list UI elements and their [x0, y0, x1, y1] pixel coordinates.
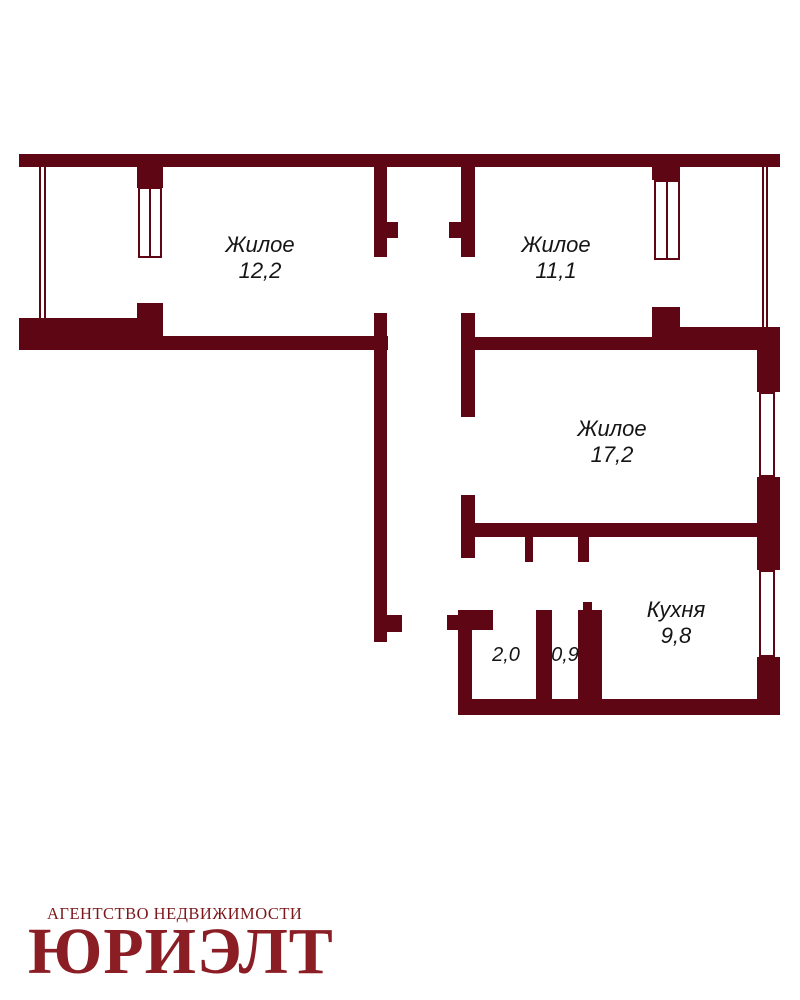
wall-segment — [583, 602, 592, 610]
wall-segment — [19, 318, 163, 350]
wall-segment — [162, 336, 388, 350]
wall-segment — [374, 313, 387, 642]
room-label-living-room-2: Жилое11,1 — [521, 232, 590, 284]
wall-segment — [757, 350, 780, 392]
floor-plan: Жилое12,2Жилое11,1Жилое17,2Кухня9,82,00,… — [0, 0, 800, 720]
wall-segment — [137, 167, 163, 188]
room-area-value: 9,8 — [647, 623, 706, 649]
wall-segment — [473, 523, 758, 537]
wall-segment — [652, 167, 680, 180]
balcony-glazing-line — [39, 167, 41, 318]
room-label-bathroom: 2,0 — [492, 644, 520, 668]
room-name: Жилое — [521, 232, 590, 258]
wall-segment — [19, 154, 780, 167]
wall-segment — [475, 337, 652, 350]
wall-segment — [447, 615, 458, 630]
room-label-living-room-1: Жилое12,2 — [225, 232, 294, 284]
balcony-glazing-line — [762, 167, 764, 327]
room-label-kitchen: Кухня9,8 — [647, 597, 706, 649]
window-symbol — [138, 187, 162, 258]
wall-segment — [578, 537, 589, 562]
wall-segment — [757, 477, 780, 570]
wall-segment — [374, 167, 387, 257]
wall-segment — [387, 615, 402, 632]
agency-brand-name: ЮРИЭЛТ — [28, 919, 334, 985]
floor-plan-page: Жилое12,2Жилое11,1Жилое17,2Кухня9,82,00,… — [0, 0, 800, 1000]
wall-segment — [137, 303, 163, 318]
room-name: Жилое — [225, 232, 294, 258]
wall-segment — [458, 610, 493, 630]
wall-segment — [461, 313, 475, 417]
balcony-glazing-line — [766, 167, 768, 327]
window-mullion — [666, 182, 668, 258]
room-area-value: 2,0 — [492, 644, 520, 668]
room-label-living-room-3: Жилое17,2 — [577, 416, 646, 468]
wall-segment — [458, 699, 780, 715]
window-mullion — [149, 189, 151, 256]
wall-segment — [449, 222, 461, 238]
window-symbol — [654, 180, 680, 260]
room-name: Жилое — [577, 416, 646, 442]
window-symbol — [759, 392, 775, 477]
room-label-toilet: 0,9 — [551, 644, 579, 668]
room-area-value: 12,2 — [225, 258, 294, 284]
wall-segment — [680, 327, 780, 350]
wall-segment — [652, 307, 680, 350]
window-symbol — [759, 570, 775, 657]
room-name: Кухня — [647, 597, 706, 623]
wall-segment — [461, 167, 475, 257]
room-area-value: 11,1 — [521, 258, 590, 284]
wall-segment — [387, 222, 398, 238]
room-area-value: 0,9 — [551, 644, 579, 668]
room-area-value: 17,2 — [577, 442, 646, 468]
balcony-glazing-line — [44, 167, 46, 318]
wall-segment — [525, 537, 533, 562]
